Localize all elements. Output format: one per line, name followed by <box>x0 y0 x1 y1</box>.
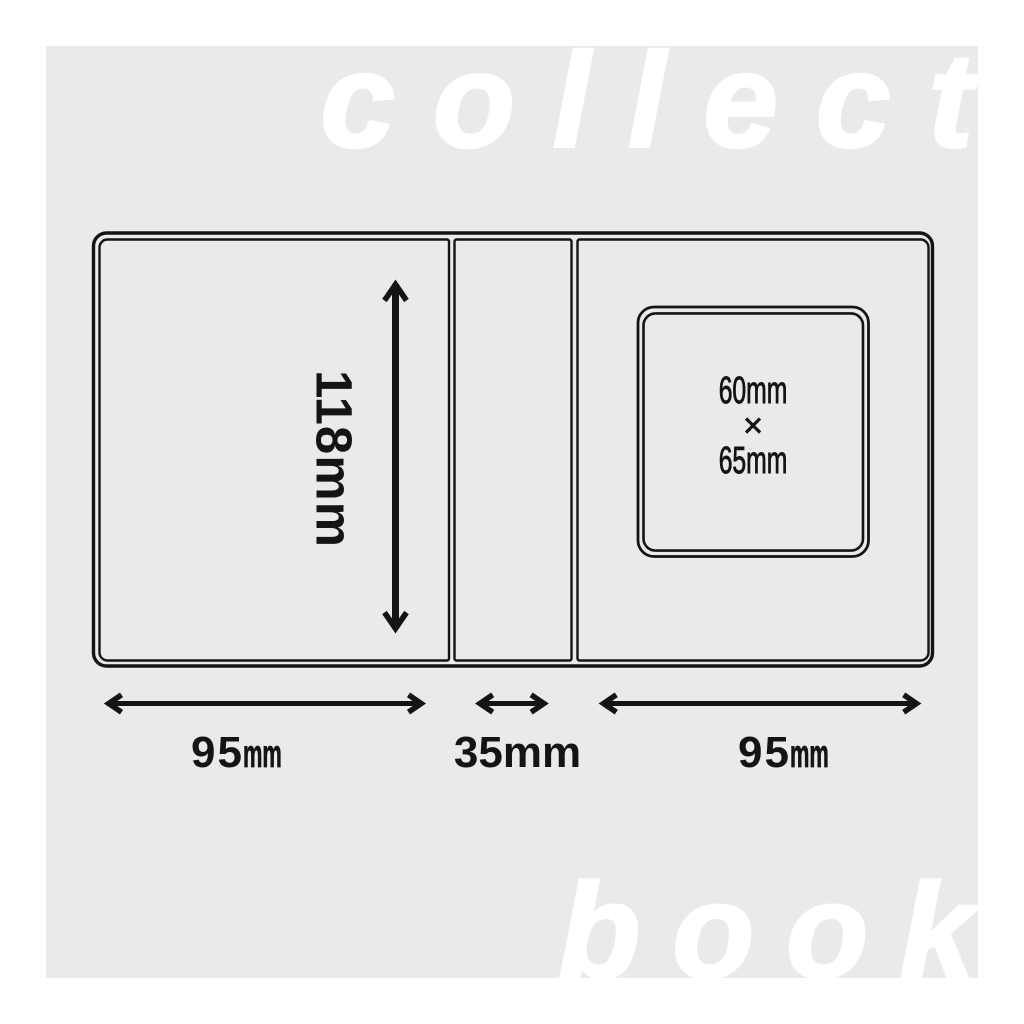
svg-text:95: 95 <box>738 728 791 777</box>
svg-text:mm: mm <box>790 731 829 775</box>
svg-text:60mm: 60mm <box>719 369 788 412</box>
svg-text:book: book <box>559 857 1007 1006</box>
svg-text:collect: collect <box>321 27 1012 176</box>
svg-text:118mm: 118mm <box>306 370 363 548</box>
svg-text:mm: mm <box>243 731 282 775</box>
svg-text:65mm: 65mm <box>719 439 788 482</box>
svg-text:35mm: 35mm <box>454 728 581 777</box>
svg-text:95: 95 <box>191 728 244 777</box>
